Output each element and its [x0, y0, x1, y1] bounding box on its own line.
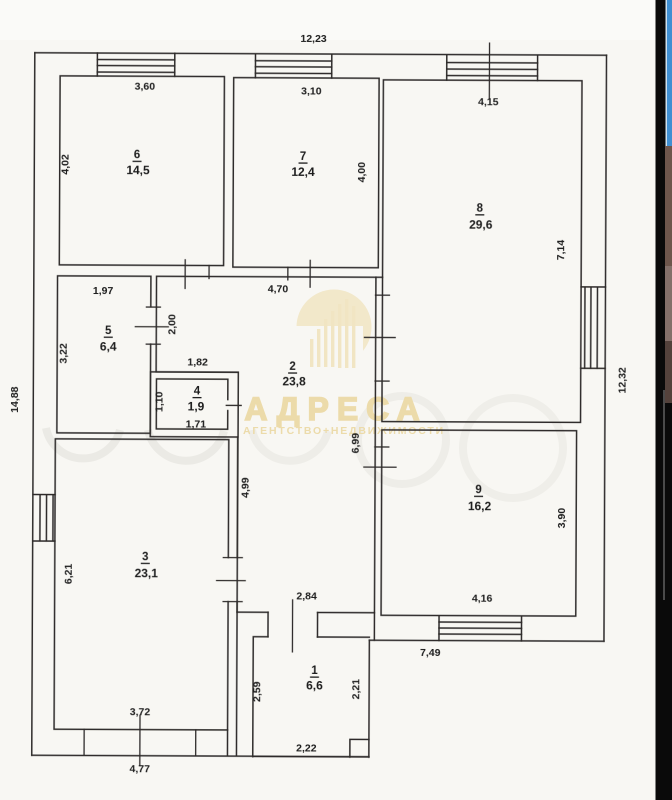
svg-text:2,00: 2,00	[166, 314, 178, 335]
svg-text:5: 5	[105, 325, 112, 337]
svg-text:8: 8	[477, 203, 484, 215]
svg-text:6: 6	[134, 149, 140, 161]
svg-text:6,21: 6,21	[63, 564, 75, 585]
svg-text:7,49: 7,49	[420, 647, 441, 659]
svg-text:6,6: 6,6	[306, 678, 323, 692]
svg-text:АГЕНТСТВО+НЕДВИЖИМОСТИ: АГЕНТСТВО+НЕДВИЖИМОСТИ	[243, 425, 445, 437]
svg-text:12,23: 12,23	[300, 33, 326, 45]
svg-text:4,00: 4,00	[356, 162, 368, 183]
svg-text:4: 4	[194, 385, 201, 397]
svg-text:3,72: 3,72	[130, 706, 151, 718]
svg-text:29,6: 29,6	[469, 218, 493, 232]
svg-text:14,88: 14,88	[9, 386, 21, 412]
svg-text:4,99: 4,99	[239, 477, 251, 498]
svg-text:1,71: 1,71	[186, 418, 207, 430]
svg-text:14,5: 14,5	[126, 163, 150, 177]
svg-text:3,60: 3,60	[135, 81, 156, 93]
svg-text:3: 3	[142, 551, 148, 563]
svg-text:2,21: 2,21	[350, 679, 362, 700]
svg-text:7,14: 7,14	[555, 240, 567, 261]
svg-text:4,77: 4,77	[130, 763, 151, 775]
svg-text:1: 1	[311, 665, 318, 677]
svg-text:12,4: 12,4	[291, 165, 315, 179]
svg-text:3,22: 3,22	[58, 343, 70, 364]
svg-text:12,32: 12,32	[617, 367, 629, 393]
svg-text:4,15: 4,15	[478, 96, 499, 108]
svg-text:9: 9	[475, 484, 481, 496]
svg-text:2: 2	[289, 361, 295, 373]
svg-text:2,84: 2,84	[296, 590, 317, 602]
svg-text:4,02: 4,02	[59, 154, 71, 175]
svg-text:23,1: 23,1	[135, 566, 159, 580]
svg-text:6,4: 6,4	[100, 340, 117, 354]
svg-text:1,9: 1,9	[188, 399, 205, 413]
svg-text:4,70: 4,70	[268, 283, 289, 295]
svg-text:1,10: 1,10	[153, 391, 165, 412]
svg-text:6,99: 6,99	[350, 433, 362, 454]
svg-text:2,22: 2,22	[296, 742, 317, 754]
svg-text:4,16: 4,16	[472, 593, 493, 605]
svg-text:1,82: 1,82	[187, 356, 208, 368]
svg-text:23,8: 23,8	[282, 374, 306, 388]
svg-text:3,10: 3,10	[301, 85, 322, 97]
svg-text:1,97: 1,97	[93, 285, 114, 297]
svg-text:2,59: 2,59	[251, 681, 263, 702]
svg-text:16,2: 16,2	[468, 499, 492, 513]
svg-text:7: 7	[300, 151, 306, 163]
svg-text:3,90: 3,90	[556, 508, 568, 529]
